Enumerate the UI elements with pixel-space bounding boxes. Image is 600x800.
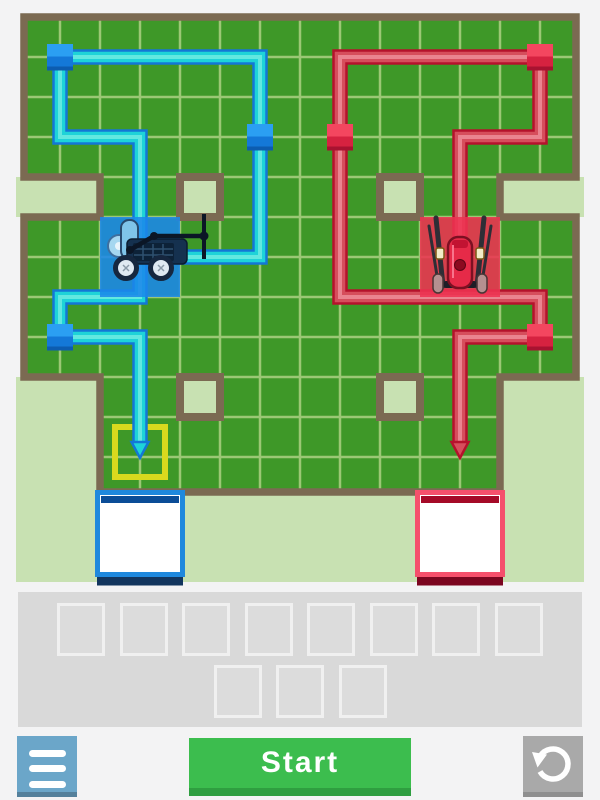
- blue-waypoint-cube[interactable]: [47, 44, 73, 71]
- command-slot[interactable]: [214, 665, 262, 718]
- start-button-label: Start: [261, 746, 339, 779]
- menu-icon: [17, 741, 77, 788]
- command-slot[interactable]: [276, 665, 324, 718]
- outside-area: [16, 177, 100, 217]
- blue-waypoint-cube[interactable]: [247, 124, 273, 151]
- red-goal-square[interactable]: [417, 493, 503, 586]
- game-screen: Start: [0, 0, 600, 800]
- blue-goal-square[interactable]: [97, 493, 183, 586]
- menu-button[interactable]: [17, 736, 77, 797]
- reset-undo-icon: [523, 736, 583, 792]
- reset-button[interactable]: [523, 736, 583, 797]
- red-waypoint-cube[interactable]: [527, 324, 553, 351]
- command-slot[interactable]: [495, 603, 543, 656]
- command-slot[interactable]: [370, 603, 418, 656]
- game-board[interactable]: [0, 0, 600, 592]
- command-slot[interactable]: [432, 603, 480, 656]
- red-waypoint-cube[interactable]: [527, 44, 553, 71]
- red-waypoint-cube[interactable]: [327, 124, 353, 151]
- command-slot[interactable]: [245, 603, 293, 656]
- pit-obstacle: [380, 177, 420, 217]
- outside-area: [16, 377, 100, 582]
- pit-obstacle: [380, 377, 420, 417]
- command-slot[interactable]: [182, 603, 230, 656]
- pit-obstacle: [180, 377, 220, 417]
- command-tray: [18, 592, 582, 727]
- command-slot[interactable]: [339, 665, 387, 718]
- outside-area: [500, 177, 584, 217]
- slot-row-1: [18, 603, 582, 656]
- command-slot[interactable]: [307, 603, 355, 656]
- pit-obstacle: [180, 177, 220, 217]
- start-button[interactable]: Start: [189, 738, 411, 796]
- slot-row-2: [18, 665, 582, 718]
- outside-area: [500, 377, 584, 582]
- command-slot[interactable]: [57, 603, 105, 656]
- command-slot[interactable]: [120, 603, 168, 656]
- blue-waypoint-cube[interactable]: [47, 324, 73, 351]
